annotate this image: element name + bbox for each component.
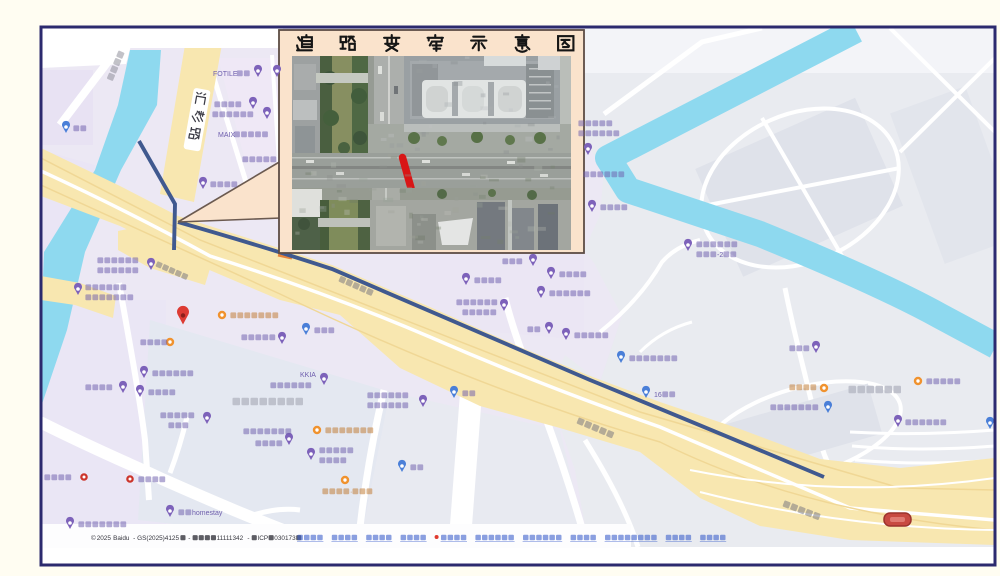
svg-text:2025: 2025 xyxy=(97,535,112,542)
svg-text:-: - xyxy=(247,535,249,542)
svg-text:11111342: 11111342 xyxy=(217,535,244,542)
svg-text:Baidu: Baidu xyxy=(113,535,130,542)
svg-text:©: © xyxy=(91,534,96,542)
svg-text:16: 16 xyxy=(654,392,662,399)
svg-text:·: · xyxy=(350,489,352,496)
svg-text:GS(2025)4125: GS(2025)4125 xyxy=(137,535,179,542)
svg-text:homestay: homestay xyxy=(192,510,223,517)
svg-text:030173: 030173 xyxy=(274,535,296,542)
svg-text:KKIA: KKIA xyxy=(300,372,316,379)
svg-text:-: - xyxy=(133,535,135,542)
svg-text:ICP: ICP xyxy=(258,535,269,542)
svg-text:-: - xyxy=(188,535,190,542)
svg-text:MAIX: MAIX xyxy=(218,132,235,139)
svg-text:-2: -2 xyxy=(717,252,723,259)
svg-text:FOTILE: FOTILE xyxy=(213,71,238,78)
